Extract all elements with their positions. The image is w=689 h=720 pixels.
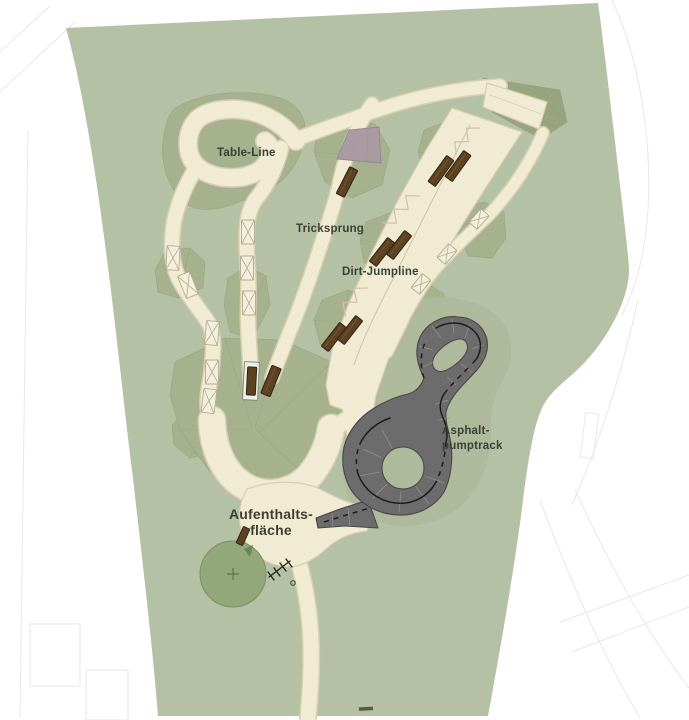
pumptrack-infield <box>382 447 424 489</box>
jump-table <box>241 256 254 280</box>
label-asphalt-pumptrack: Asphalt- pumptrack <box>442 424 503 454</box>
label-line: pumptrack <box>442 439 503 454</box>
jump-table <box>242 220 255 244</box>
jump-table <box>204 320 219 345</box>
foam-pit <box>243 362 260 401</box>
label-aufenthaltsflaeche: Aufenthalts- fläche <box>212 506 330 538</box>
jump-table <box>206 360 219 384</box>
label-table-line: Table-Line <box>217 146 276 161</box>
label-tricksprung: Tricksprung <box>296 222 364 237</box>
bikepark-site-plan: Table-Line Tricksprung Dirt-Jumpline Asp… <box>0 0 689 720</box>
label-line: Asphalt- <box>442 424 503 439</box>
label-line: Aufenthalts- <box>212 506 330 522</box>
plan-drawing <box>0 0 689 720</box>
jump-table <box>243 291 256 315</box>
jump-table <box>166 246 180 271</box>
label-dirt-jumpline: Dirt-Jumpline <box>342 265 419 280</box>
label-line: fläche <box>212 522 330 538</box>
jump-table <box>201 388 217 413</box>
bollard-marker <box>359 707 373 711</box>
